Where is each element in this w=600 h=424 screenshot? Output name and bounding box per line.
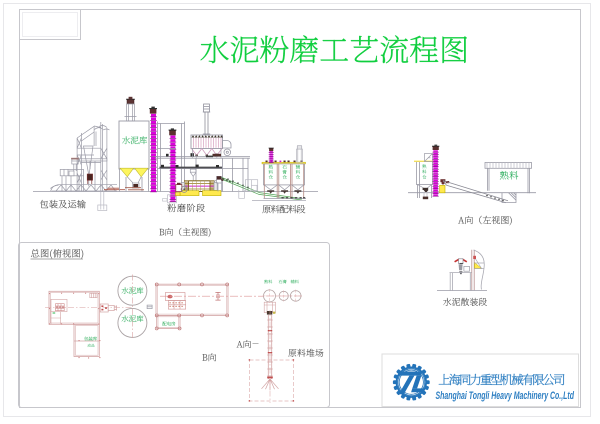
svg-text:Shanghai Tongli Heavy Machiner: Shanghai Tongli Heavy Machinery Co.,Ltd	[436, 390, 575, 402]
